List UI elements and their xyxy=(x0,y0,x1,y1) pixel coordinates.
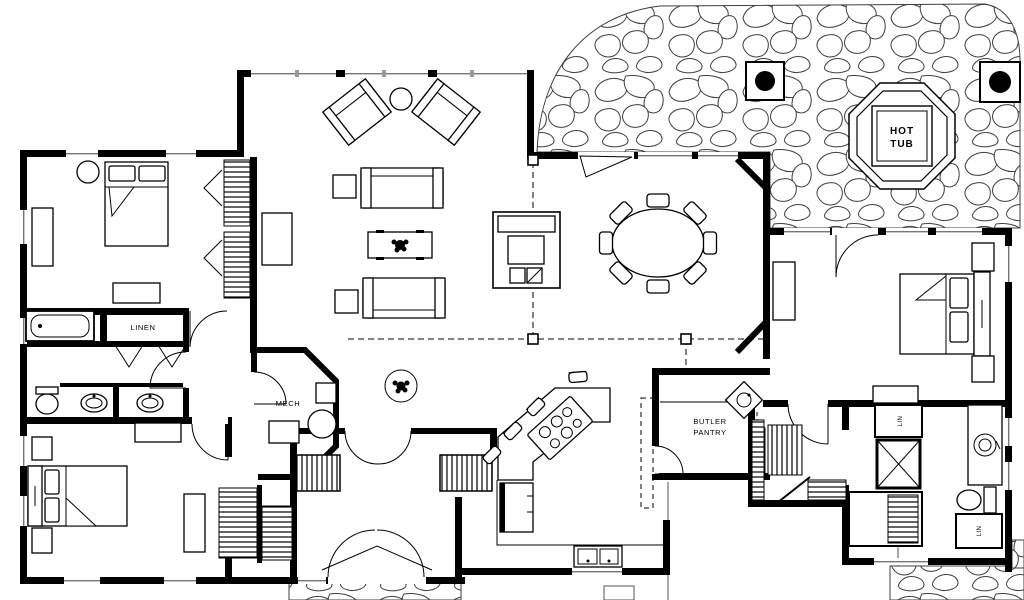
window xyxy=(874,558,928,565)
master-bedroom xyxy=(773,243,994,403)
shower xyxy=(877,440,920,488)
window xyxy=(64,577,100,584)
door-arc xyxy=(192,417,228,460)
linen-label: LINEN xyxy=(130,323,155,332)
equipment-box xyxy=(316,383,336,403)
window xyxy=(698,152,738,159)
column-post xyxy=(528,155,538,165)
dresser xyxy=(32,208,53,266)
water-tank xyxy=(308,410,336,438)
nightstand xyxy=(32,528,52,553)
round-table xyxy=(77,161,99,183)
mech-label: MECH xyxy=(276,399,300,408)
sink xyxy=(81,394,107,412)
window xyxy=(936,228,982,235)
window xyxy=(886,228,928,235)
dining-chair xyxy=(600,232,613,254)
dining-room xyxy=(600,194,717,293)
hot-tub: HOT TUB xyxy=(849,83,955,189)
walk-in-closet xyxy=(849,492,922,546)
hot-tub-label-line2: TUB xyxy=(890,139,914,150)
window xyxy=(1005,418,1012,446)
dining-table xyxy=(612,209,704,277)
floor-plan-page: HOT TUB xyxy=(0,0,1024,600)
great-room xyxy=(262,79,480,318)
kitchen xyxy=(482,371,663,567)
armchair xyxy=(323,79,391,145)
sink xyxy=(137,394,163,412)
console-table xyxy=(262,213,292,265)
end-table xyxy=(333,175,356,198)
linen-closet-small: LIN xyxy=(875,405,922,437)
bedroom-bottom-left xyxy=(28,423,292,563)
potted-plant xyxy=(385,370,417,402)
dresser xyxy=(135,423,181,442)
vanity xyxy=(968,405,1002,485)
kitchen-sink xyxy=(574,546,622,567)
door-arc xyxy=(652,446,683,474)
master-bathroom: LIN LIN xyxy=(849,405,1002,548)
dresser xyxy=(773,262,795,320)
sofa xyxy=(363,278,445,318)
window xyxy=(298,577,326,584)
toilet xyxy=(957,487,996,513)
butler-pantry-label-line2: PANTRY xyxy=(693,428,726,437)
window xyxy=(20,436,27,466)
door-arc xyxy=(150,352,189,388)
floor-plan-canvas: HOT TUB xyxy=(0,0,1024,600)
round-side-table xyxy=(390,88,412,110)
dresser xyxy=(113,283,160,303)
window xyxy=(66,150,98,157)
bedroom-top-left xyxy=(32,160,250,303)
nightstand xyxy=(972,243,994,271)
bed xyxy=(105,162,168,246)
butler-pantry-label-line1: BUTLER xyxy=(693,417,726,426)
window xyxy=(1005,246,1012,282)
lin-label-upper: LIN xyxy=(898,416,904,427)
end-table xyxy=(335,290,358,313)
lin-label-lower: LIN xyxy=(977,526,983,537)
hot-tub-label-line1: HOT xyxy=(890,126,914,137)
window xyxy=(164,577,196,584)
sofa xyxy=(361,168,443,208)
window xyxy=(20,210,27,244)
window xyxy=(784,228,830,235)
column-post xyxy=(528,334,538,344)
window xyxy=(638,152,692,159)
equipment-box xyxy=(269,421,299,443)
dining-chair xyxy=(704,232,717,254)
window xyxy=(1005,462,1012,490)
closet-rods xyxy=(219,485,292,563)
linen-closet-small: LIN xyxy=(956,514,1002,548)
door-arc xyxy=(190,308,228,347)
closet-rods xyxy=(224,160,250,298)
tall-chest xyxy=(184,494,205,552)
bed xyxy=(900,272,990,356)
window xyxy=(166,150,196,157)
bed xyxy=(28,466,127,526)
entry-double-doors[interactable] xyxy=(328,530,426,584)
stone-stoop-front xyxy=(289,583,461,600)
column-post xyxy=(681,334,691,344)
patio-post xyxy=(980,62,1020,102)
patio-post xyxy=(746,62,784,100)
window xyxy=(572,568,622,575)
bifold-door xyxy=(115,345,186,367)
window xyxy=(20,496,27,526)
upper-cabinets-dashed xyxy=(641,398,653,508)
bifold-door xyxy=(204,170,222,276)
porch-step xyxy=(604,586,634,600)
bathtub xyxy=(26,311,94,341)
refrigerator xyxy=(500,483,533,532)
nightstand xyxy=(32,437,52,460)
toilet xyxy=(36,387,58,414)
linen-closet: LINEN xyxy=(130,323,155,332)
window-wall-great-room xyxy=(251,70,527,77)
coffee-table xyxy=(368,230,432,260)
stairwell xyxy=(752,420,846,503)
fireplace-builtin xyxy=(493,212,560,288)
dresser xyxy=(873,386,918,403)
dining-chair xyxy=(647,280,669,293)
armchair xyxy=(412,79,480,145)
nightstand xyxy=(972,356,994,382)
kitchen-island xyxy=(482,371,610,480)
patio-door xyxy=(578,152,634,177)
dining-chair xyxy=(647,194,669,207)
door-arc xyxy=(832,228,878,277)
bar-stool xyxy=(569,371,588,383)
french-doors-interior xyxy=(345,431,411,464)
